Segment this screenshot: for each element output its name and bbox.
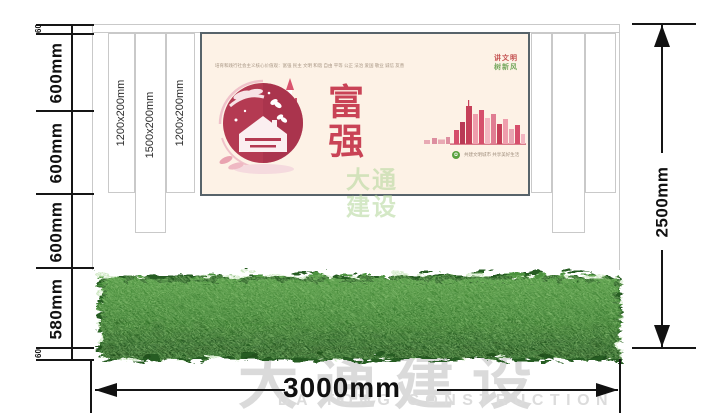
poster-slogan: 讲文明 树新风 — [494, 55, 518, 72]
wall-right-edge — [619, 24, 620, 270]
dimension-tick — [36, 347, 94, 349]
panel-size-label: 1200x200mm — [174, 80, 186, 147]
dimension-tick — [36, 24, 94, 26]
dimension-tick — [36, 110, 94, 112]
dimension-label: 600mm — [47, 122, 67, 183]
papercut-circle-art — [212, 68, 314, 180]
watermark-green: 大通 建设 — [346, 167, 398, 221]
watermark-green-line2: 建设 — [346, 194, 398, 221]
arrow-right-icon — [596, 383, 618, 397]
dimension-label: 600mm — [47, 201, 67, 262]
panel-strip — [585, 33, 616, 193]
poster-footer: ✿ 共建文明城市 共享美好生活 — [452, 151, 519, 159]
slogan-line-2: 树新风 — [494, 64, 518, 73]
leaf-badge-icon: ✿ — [452, 151, 460, 159]
skyline-art — [424, 94, 526, 154]
wall-left-edge — [92, 24, 93, 270]
bottom-dimension-label: 3000mm — [283, 372, 401, 404]
arrow-left-icon — [95, 383, 117, 397]
bottom-dimension-line — [95, 389, 285, 391]
dimension-tick — [36, 33, 94, 35]
poster-footer-text: 共建文明城市 共享美好生活 — [464, 152, 519, 158]
panel-strip — [552, 33, 585, 233]
dimension-tick — [36, 359, 94, 361]
right-dimension-label: 2500mm — [653, 166, 673, 237]
dimension-tick — [36, 193, 94, 195]
arrow-down-icon — [654, 325, 670, 347]
dimension-label: 60 — [34, 24, 43, 33]
poster-main-text: 富强 — [323, 83, 363, 161]
bottom-dimension-line — [437, 389, 618, 391]
slogan-line-1: 讲文明 — [494, 55, 518, 64]
panel-strip — [531, 33, 552, 193]
extension-line — [90, 359, 92, 413]
hedge-image — [88, 258, 624, 364]
dimension-tick — [632, 347, 696, 349]
elevation-drawing: 大通建设 DA TONG CONSTRUCTION 1200x200mm 150… — [0, 0, 720, 420]
panel-size-label: 1200x200mm — [115, 80, 127, 147]
dimension-tick — [36, 267, 94, 269]
arrow-up-icon — [654, 25, 670, 47]
dimension-label: 580mm — [47, 278, 67, 339]
dimension-label: 600mm — [47, 42, 67, 103]
watermark-green-line1: 大通 — [346, 167, 398, 194]
dimension-label: 60 — [34, 349, 43, 358]
panel-size-label: 1500x200mm — [144, 92, 156, 159]
left-dimension-line — [71, 24, 73, 360]
extension-line — [619, 359, 621, 413]
